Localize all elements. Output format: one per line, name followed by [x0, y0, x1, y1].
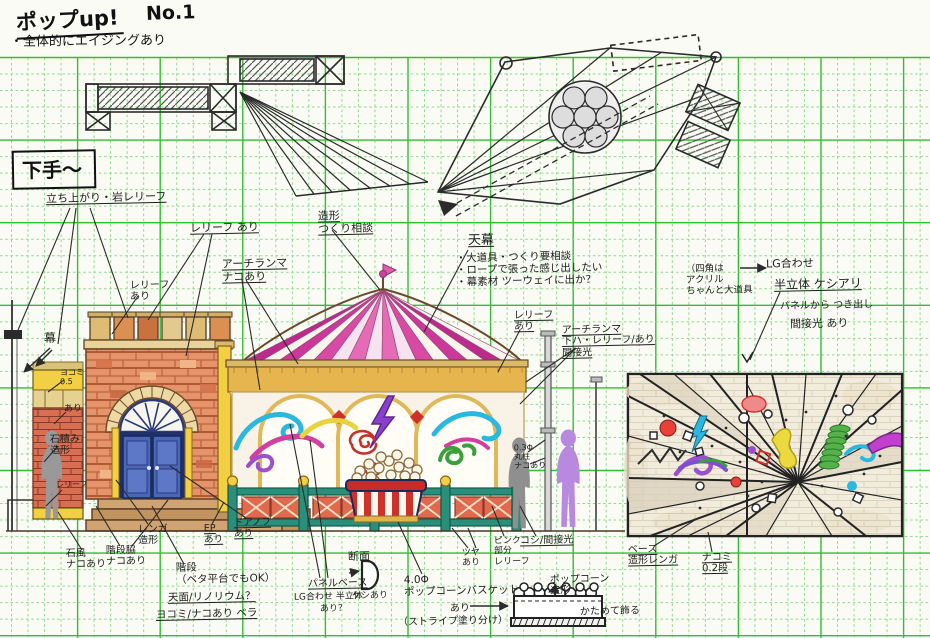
brick-tower-elevation	[84, 312, 234, 512]
burst-mural-panel	[624, 374, 902, 536]
circus-tent-roof	[226, 264, 528, 400]
side-section-view	[4, 300, 83, 531]
plan-views	[86, 35, 746, 216]
purple-silhouette	[557, 430, 580, 527]
plan-fan-lines	[240, 92, 428, 196]
entablature	[228, 367, 526, 392]
door-knob	[155, 466, 159, 470]
cross-section-d-shape	[362, 561, 378, 589]
tent-stripes	[240, 290, 524, 363]
plan-wheel	[549, 81, 621, 153]
sketch-page: ポップup! No.1 ・全体的にエイジングあり 下手〜 立ち上がり・岩レリーフ…	[0, 0, 930, 638]
door-knob	[147, 466, 151, 470]
popcorn-trough-sketch	[511, 583, 605, 626]
sketch-canvas	[0, 0, 930, 638]
